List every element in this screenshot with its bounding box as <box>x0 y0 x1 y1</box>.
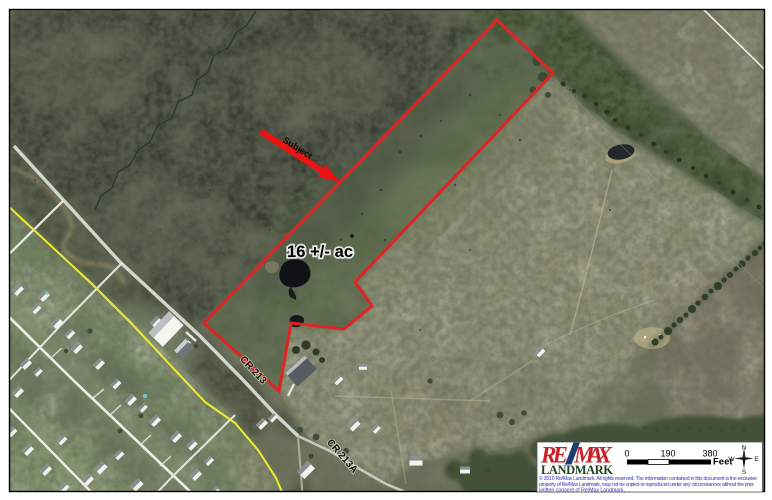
svg-text:E: E <box>754 456 759 463</box>
svg-text:N: N <box>742 445 747 452</box>
svg-text:S: S <box>742 469 747 476</box>
svg-text:written consent of Re/Max Land: written consent of Re/Max Landmark. <box>539 488 625 494</box>
svg-text:190: 190 <box>660 449 675 459</box>
svg-text:© 2010 Re/Max Landmark. All ri: © 2010 Re/Max Landmark. All rights reser… <box>539 475 757 482</box>
svg-text:LANDMARK: LANDMARK <box>541 463 613 477</box>
svg-text:0: 0 <box>624 449 629 459</box>
svg-text:16 +/- ac: 16 +/- ac <box>287 243 353 261</box>
svg-text:W: W <box>728 456 735 463</box>
